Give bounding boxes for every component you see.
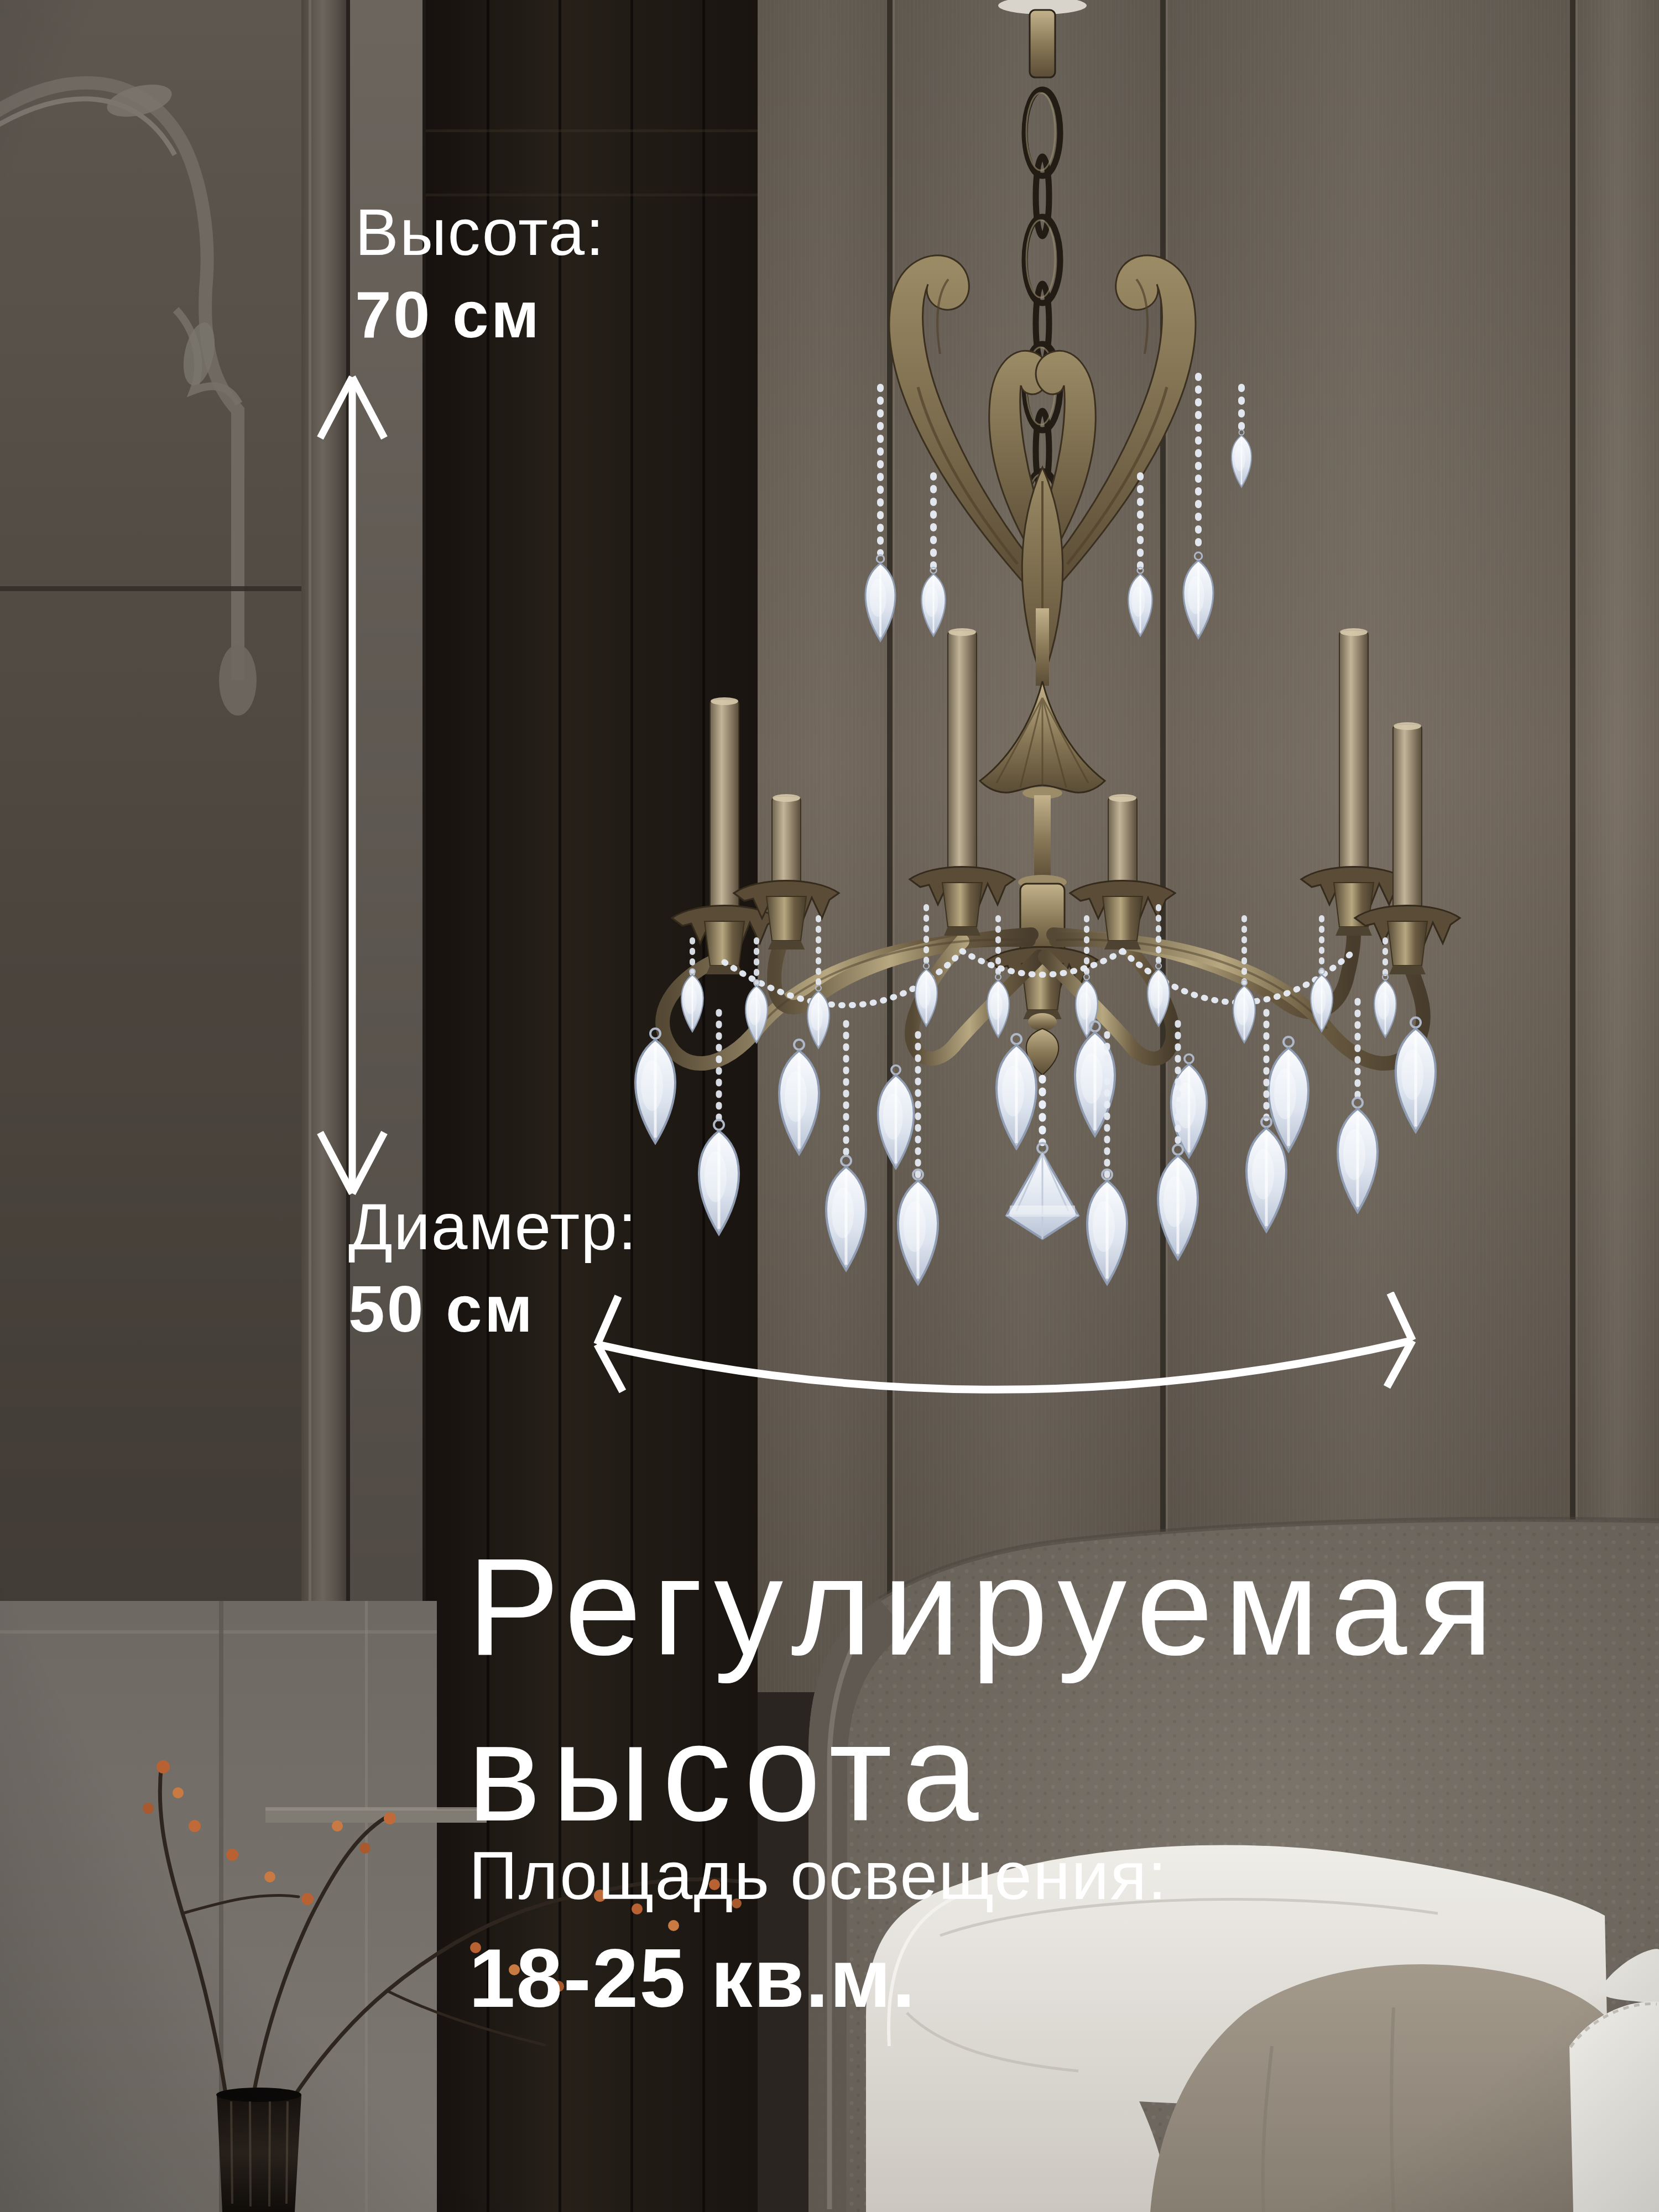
product-banner: Высота: 70 см Диаметр: 50 см Регулируема… bbox=[0, 0, 1659, 2212]
lighting-area-annotation: Площадь освещения: 18-25 кв.м. bbox=[469, 1837, 1167, 2026]
lighting-area-value: 18-25 кв.м. bbox=[469, 1930, 1167, 2026]
lighting-area-label: Площадь освещения: bbox=[469, 1837, 1167, 1916]
headline: Регулируемая высота bbox=[467, 1524, 1504, 1856]
diameter-label: Диаметр: bbox=[348, 1189, 638, 1265]
height-arrow-icon bbox=[315, 372, 389, 1199]
headline-line1: Регулируемая bbox=[467, 1524, 1504, 1690]
headline-line2: высота bbox=[467, 1690, 1504, 1856]
height-label: Высота: bbox=[355, 195, 605, 270]
diameter-arrow-icon bbox=[582, 1292, 1428, 1452]
height-annotation: Высота: 70 см bbox=[355, 195, 605, 353]
height-value: 70 см bbox=[355, 277, 605, 353]
